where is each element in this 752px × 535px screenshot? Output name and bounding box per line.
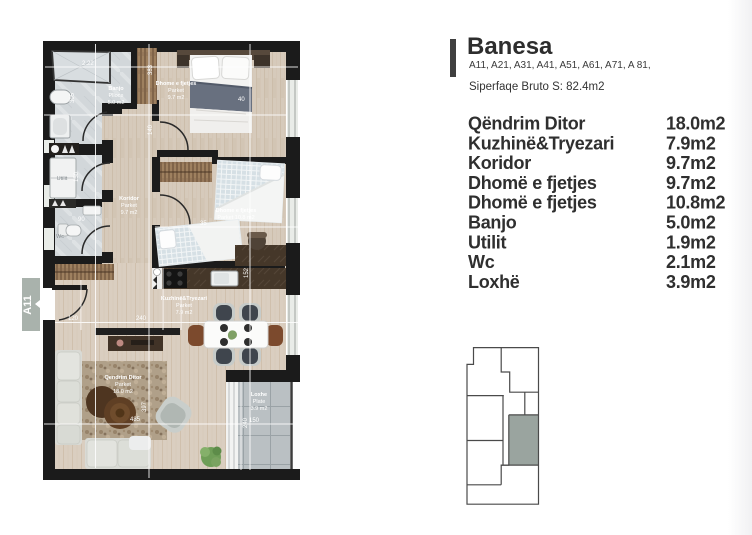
svg-text:18.0 m2: 18.0 m2 bbox=[113, 389, 133, 395]
svg-text:Qëndrim Ditor: Qëndrim Ditor bbox=[468, 114, 585, 134]
svg-text:Dhomë e fjetjes: Dhomë e fjetjes bbox=[468, 193, 597, 213]
svg-text:A11: A11 bbox=[22, 295, 34, 315]
svg-text:Utilit: Utilit bbox=[57, 176, 68, 182]
svg-text:2.1m2: 2.1m2 bbox=[666, 252, 716, 272]
svg-text:Parket 10.8 m2: Parket 10.8 m2 bbox=[217, 215, 254, 221]
svg-text:152: 152 bbox=[244, 267, 250, 278]
svg-text:383: 383 bbox=[148, 64, 154, 75]
svg-text:10.8m2: 10.8m2 bbox=[666, 193, 726, 213]
svg-text:Loxhë: Loxhë bbox=[468, 272, 520, 292]
svg-text:5.0m2: 5.0m2 bbox=[666, 213, 716, 233]
svg-text:7.9 m2: 7.9 m2 bbox=[176, 310, 193, 316]
svg-text:150: 150 bbox=[249, 418, 260, 424]
svg-text:Wc: Wc bbox=[56, 234, 64, 240]
svg-text:A11, A21, A31, A41, A51, A61,: A11, A21, A31, A41, A51, A61, A71, A 81, bbox=[469, 60, 651, 71]
svg-text:Plate: Plate bbox=[253, 399, 266, 405]
svg-text:Parket: Parket bbox=[168, 88, 184, 94]
svg-text:35: 35 bbox=[200, 221, 207, 227]
svg-text:120: 120 bbox=[68, 316, 79, 322]
svg-text:1.9m2: 1.9m2 bbox=[666, 232, 716, 252]
svg-text:Loxhe: Loxhe bbox=[251, 392, 267, 398]
svg-text:305: 305 bbox=[70, 92, 76, 103]
svg-text:Dhome e fjetjes: Dhome e fjetjes bbox=[156, 81, 197, 87]
svg-text:Banjo: Banjo bbox=[468, 213, 517, 233]
svg-text:150: 150 bbox=[74, 171, 80, 182]
svg-text:Kuzhinë&Tryezari: Kuzhinë&Tryezari bbox=[468, 133, 614, 153]
svg-text:Plloce: Plloce bbox=[109, 93, 124, 99]
svg-text:Banjo: Banjo bbox=[108, 86, 124, 92]
svg-text:Qendrim Ditor: Qendrim Ditor bbox=[105, 375, 143, 381]
svg-text:9.7m2: 9.7m2 bbox=[666, 153, 716, 173]
svg-text:9.7 m2: 9.7 m2 bbox=[121, 210, 138, 216]
svg-text:140: 140 bbox=[148, 124, 154, 135]
svg-text:3.9 m2: 3.9 m2 bbox=[251, 406, 268, 412]
svg-text:Siperfaqe Bruto S: 82.4m2: Siperfaqe Bruto S: 82.4m2 bbox=[469, 81, 605, 93]
svg-text:Kuzhine&Tryezari: Kuzhine&Tryezari bbox=[161, 296, 208, 302]
svg-text:Koridor: Koridor bbox=[119, 196, 140, 202]
svg-text:Parket: Parket bbox=[121, 203, 137, 209]
svg-text:Wc: Wc bbox=[468, 252, 495, 272]
svg-text:5.0 m2: 5.0 m2 bbox=[108, 100, 125, 106]
svg-text:Utilit: Utilit bbox=[468, 232, 506, 252]
svg-text:Dhomë e fjetjes: Dhomë e fjetjes bbox=[468, 173, 597, 193]
svg-text:Parket: Parket bbox=[176, 303, 192, 309]
svg-text:40: 40 bbox=[238, 97, 245, 103]
svg-text:Koridor: Koridor bbox=[468, 153, 531, 173]
svg-text:240: 240 bbox=[136, 316, 147, 322]
svg-text:2.22: 2.22 bbox=[82, 61, 94, 67]
svg-text:90: 90 bbox=[78, 217, 85, 223]
svg-text:9.7 m2: 9.7 m2 bbox=[168, 95, 185, 101]
svg-text:397: 397 bbox=[142, 401, 148, 412]
svg-text:Parket: Parket bbox=[115, 382, 131, 388]
svg-text:18.0m2: 18.0m2 bbox=[666, 114, 726, 134]
svg-text:Dhome e fjetjes: Dhome e fjetjes bbox=[216, 208, 257, 214]
svg-text:9.7m2: 9.7m2 bbox=[666, 173, 716, 193]
svg-text:485: 485 bbox=[130, 417, 141, 423]
svg-text:7.9m2: 7.9m2 bbox=[666, 133, 716, 153]
svg-text:3.9m2: 3.9m2 bbox=[666, 272, 716, 292]
svg-text:Banesa: Banesa bbox=[467, 33, 553, 60]
